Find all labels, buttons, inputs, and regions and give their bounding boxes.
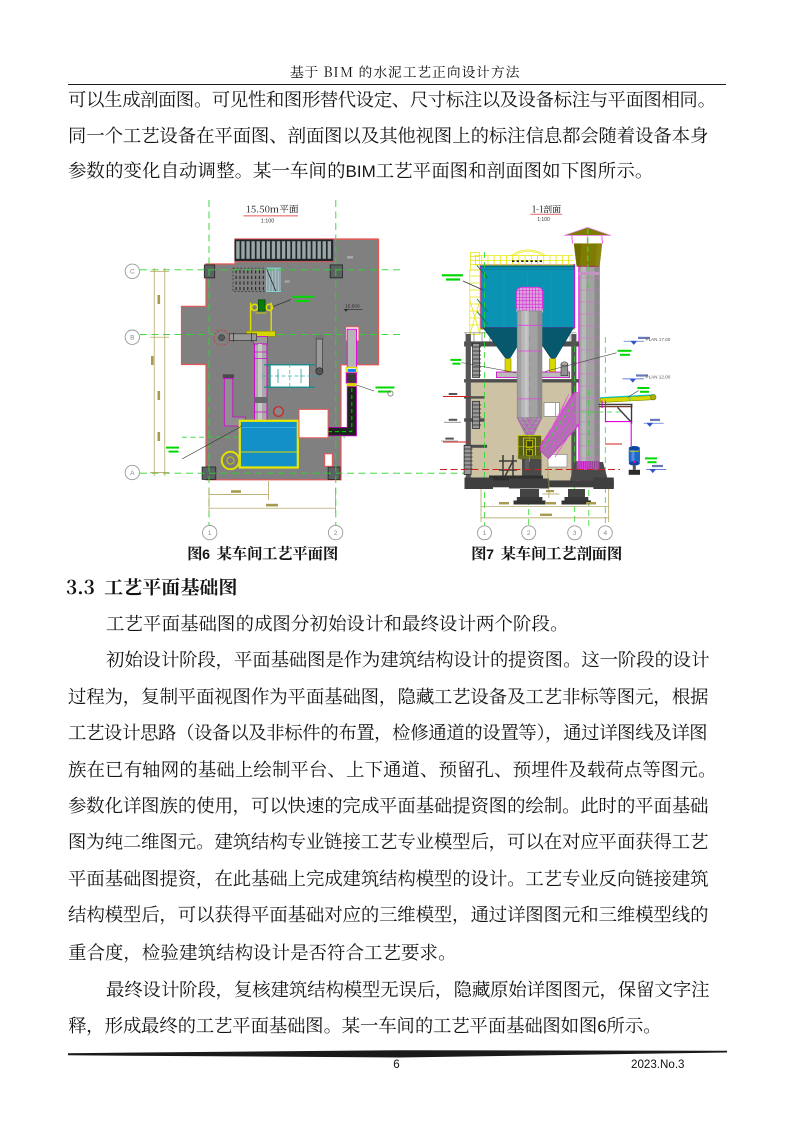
svg-text:1-1剖面: 1-1剖面	[532, 203, 562, 216]
svg-text:1: 1	[483, 530, 487, 537]
svg-text:4: 4	[603, 530, 607, 537]
svg-text:PLAN 12.00: PLAN 12.00	[646, 375, 671, 380]
svg-text:3: 3	[573, 530, 577, 537]
svg-text:PLAN 17.00: PLAN 17.00	[646, 337, 671, 342]
svg-text:2: 2	[527, 530, 531, 537]
svg-text:1:100: 1:100	[537, 217, 550, 223]
